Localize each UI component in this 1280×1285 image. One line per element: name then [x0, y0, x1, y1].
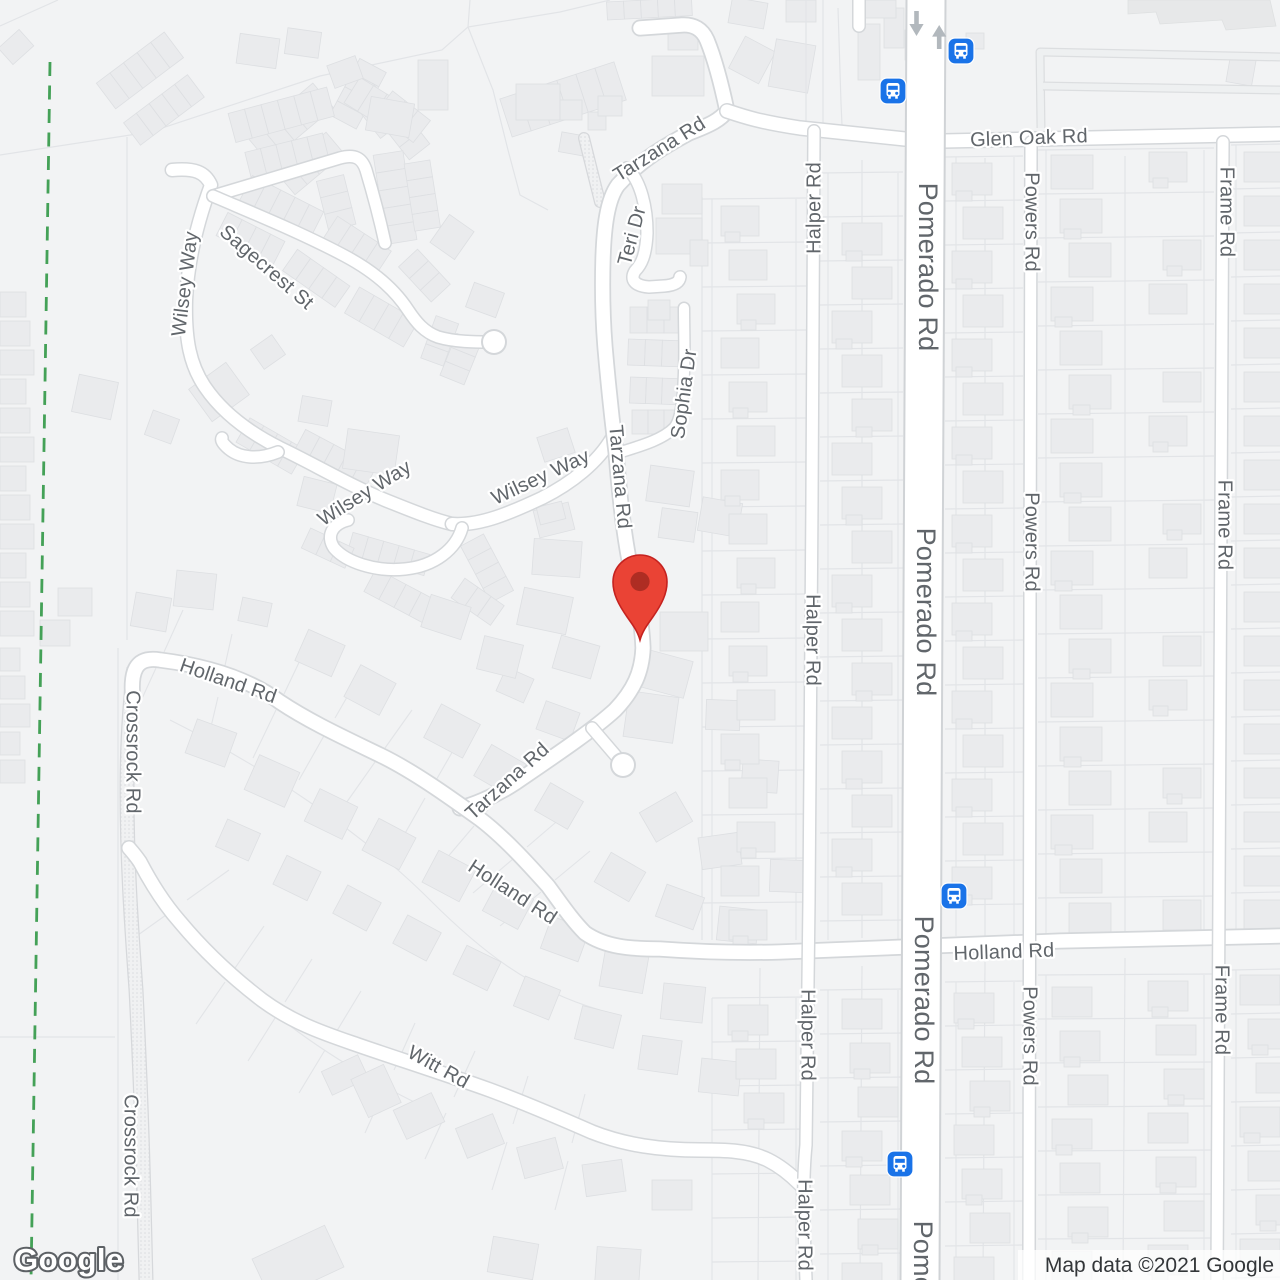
svg-text:Powers Rd: Powers Rd — [1019, 986, 1041, 1086]
svg-text:Powers Rd: Powers Rd — [1021, 492, 1043, 592]
svg-text:Halper Rd: Halper Rd — [797, 989, 819, 1081]
svg-text:Pomerado Rd: Pomerado Rd — [908, 1221, 938, 1280]
svg-text:Halper Rd: Halper Rd — [794, 1179, 816, 1271]
svg-text:Halper Rd: Halper Rd — [802, 594, 824, 686]
svg-text:Frame Rd: Frame Rd — [1214, 480, 1236, 571]
svg-text:Holland Rd: Holland Rd — [953, 940, 1055, 966]
svg-text:Crossrock Rd: Crossrock Rd — [120, 1094, 142, 1218]
svg-text:Pomerado Rd: Pomerado Rd — [913, 183, 943, 352]
svg-text:Crossrock Rd: Crossrock Rd — [122, 690, 144, 814]
svg-text:Frame Rd: Frame Rd — [1211, 965, 1233, 1056]
svg-text:Frame Rd: Frame Rd — [1216, 167, 1238, 258]
svg-text:Pomerado Rd: Pomerado Rd — [911, 528, 941, 697]
svg-text:Glen Oak Rd: Glen Oak Rd — [970, 125, 1089, 151]
svg-text:Google: Google — [14, 1242, 124, 1277]
svg-text:Powers Rd: Powers Rd — [1021, 172, 1043, 272]
svg-text:Map data ©2021 Google: Map data ©2021 Google — [1045, 1254, 1274, 1277]
svg-text:Halper Rd: Halper Rd — [803, 162, 825, 254]
svg-text:Pomerado Rd: Pomerado Rd — [909, 916, 939, 1085]
